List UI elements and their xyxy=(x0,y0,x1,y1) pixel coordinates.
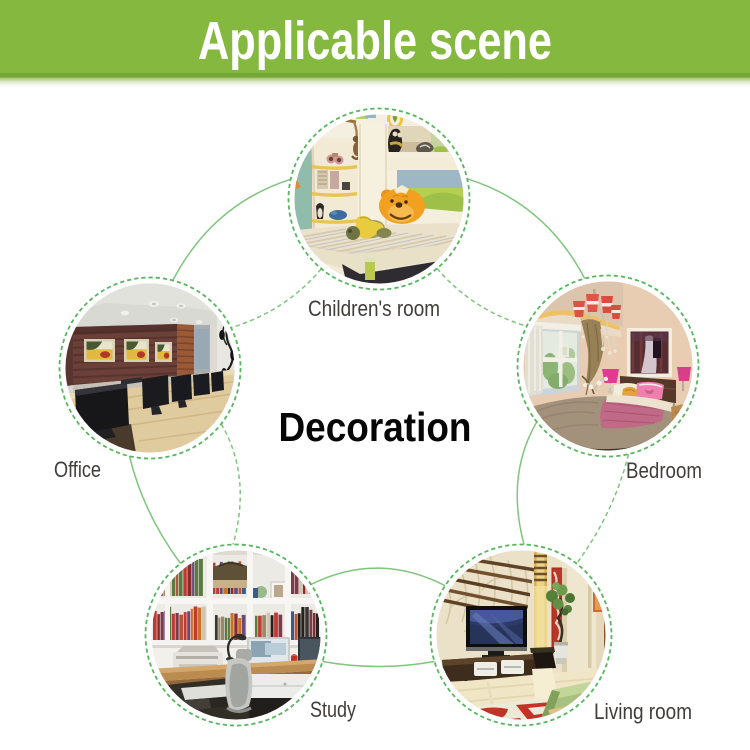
svg-text:Decoration: Decoration xyxy=(279,404,472,450)
svg-text:Study: Study xyxy=(310,697,356,722)
svg-text:Bedroom: Bedroom xyxy=(626,458,702,483)
svg-text:Applicable scene: Applicable scene xyxy=(198,11,552,71)
svg-text:Children's room: Children's room xyxy=(308,296,440,321)
svg-text:Living room: Living room xyxy=(594,699,692,724)
svg-text:Office: Office xyxy=(54,457,101,482)
